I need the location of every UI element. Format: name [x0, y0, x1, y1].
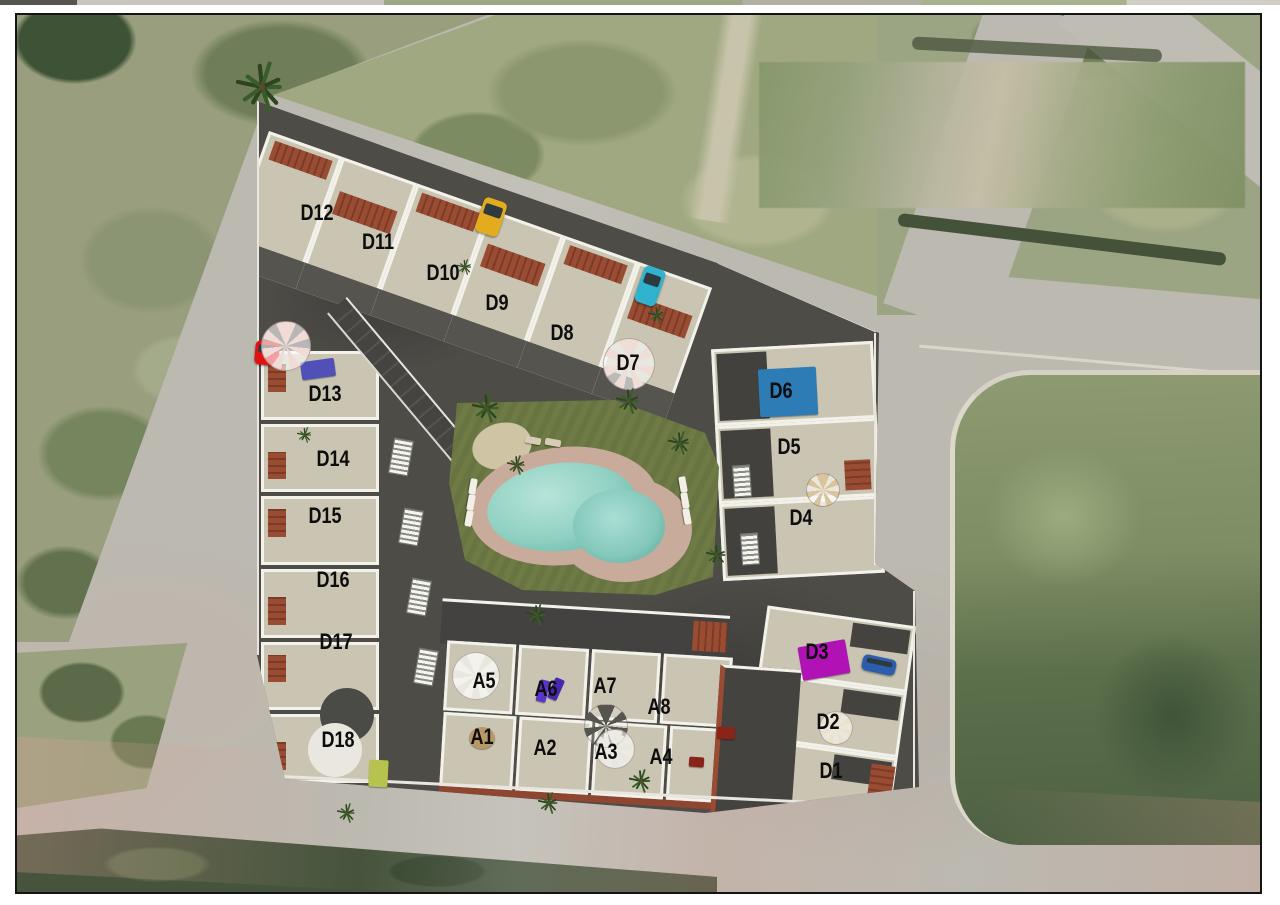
unit-label-d13[interactable]: D13	[308, 383, 341, 405]
field-light-patch	[986, 446, 1142, 587]
photo-edge-sliver	[0, 0, 1280, 5]
unit-label-d11[interactable]: D11	[362, 231, 394, 253]
unit-label-d5[interactable]: D5	[777, 436, 800, 458]
unit-label-d8[interactable]: D8	[550, 322, 573, 344]
unit-label-a3[interactable]: A3	[594, 741, 617, 763]
erased-watermark	[759, 62, 1245, 208]
unit-label-d1[interactable]: D1	[819, 760, 842, 782]
unit-label-d10[interactable]: D10	[426, 262, 459, 284]
unit-label-a4[interactable]: A4	[649, 746, 672, 768]
boundary-wall-east	[874, 333, 876, 565]
building-block-d4-d6	[711, 341, 885, 581]
unit-label-d2[interactable]: D2	[816, 711, 839, 733]
unit-label-d9[interactable]: D9	[485, 292, 508, 314]
boundary-wall-southeast	[913, 591, 915, 789]
aerial-site-plan-photo: D12D11D10D9D8D7D13D14D15D16D17D18D6D5D4D…	[15, 13, 1262, 894]
unit-label-d17[interactable]: D17	[319, 631, 352, 653]
unit-label-d3[interactable]: D3	[805, 641, 828, 663]
unit-label-a7[interactable]: A7	[593, 675, 616, 697]
unit-label-a8[interactable]: A8	[647, 696, 670, 718]
field-dark-patch	[1095, 634, 1251, 799]
unit-label-d16[interactable]: D16	[316, 569, 349, 591]
unit-label-d14[interactable]: D14	[316, 448, 349, 470]
unit-label-d4[interactable]: D4	[789, 507, 812, 529]
building-unit-d6	[711, 341, 877, 427]
boundary-wall-west	[256, 99, 259, 655]
unit-label-a5[interactable]: A5	[472, 670, 495, 692]
unit-label-d15[interactable]: D15	[308, 505, 341, 527]
unit-label-a1[interactable]: A1	[470, 726, 493, 748]
unit-label-a2[interactable]: A2	[533, 737, 556, 759]
unit-label-d18[interactable]: D18	[321, 729, 354, 751]
unit-label-d12[interactable]: D12	[300, 202, 333, 224]
building-unit-d5	[715, 418, 881, 504]
unit-label-a6[interactable]: A6	[534, 678, 557, 700]
field-footpath	[688, 13, 763, 224]
unit-label-d7[interactable]: D7	[616, 352, 639, 374]
unit-label-d6[interactable]: D6	[769, 380, 792, 402]
swimming-pool-lobe	[573, 489, 665, 563]
green-field-southeast	[950, 370, 1262, 845]
